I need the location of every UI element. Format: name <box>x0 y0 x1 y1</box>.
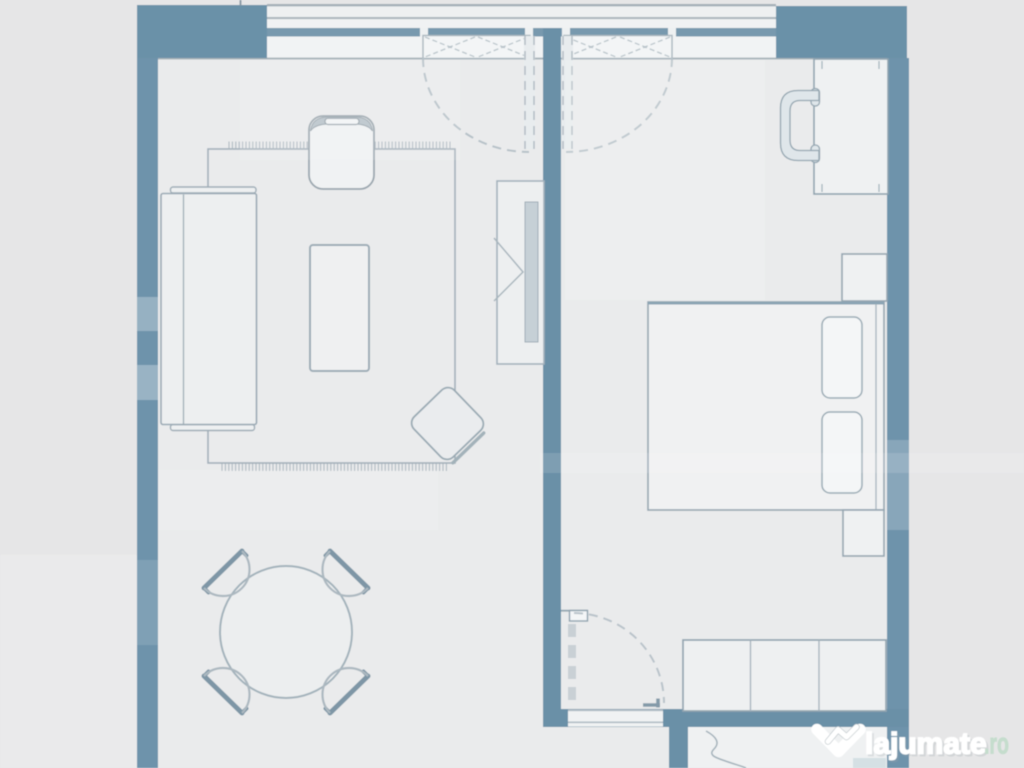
svg-text:lajumate: lajumate <box>865 728 987 761</box>
svg-text:.ro: .ro <box>984 728 1009 761</box>
